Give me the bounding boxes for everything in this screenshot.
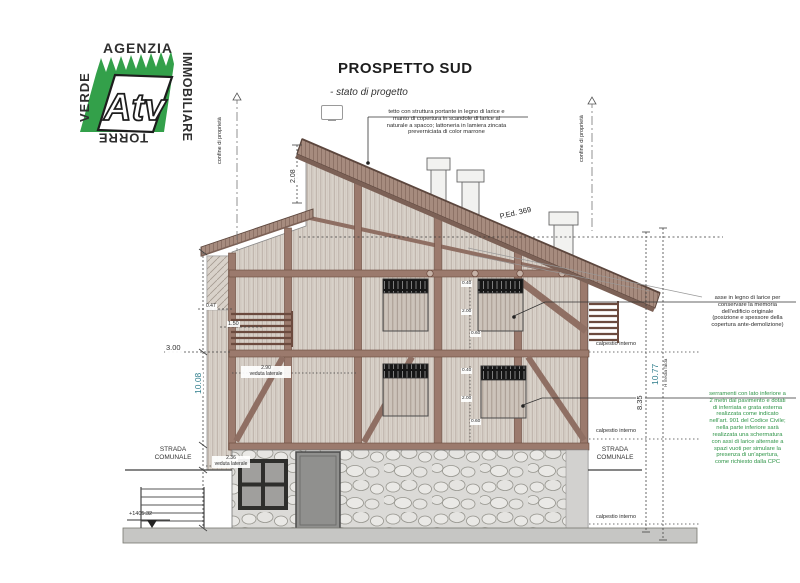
dim-chain-low-3: 0.60 bbox=[470, 419, 481, 425]
basement-door bbox=[296, 452, 340, 529]
dim-left-total: 10.08 bbox=[193, 372, 203, 395]
logo-monogram: Atv bbox=[103, 87, 167, 129]
basement-window bbox=[240, 461, 286, 508]
dim-chain-up-1: 0.40 bbox=[461, 281, 472, 287]
floor-beam-upper bbox=[229, 270, 589, 277]
logo-word-top: AGENZIA bbox=[103, 40, 173, 57]
level-marker-triangle bbox=[147, 520, 157, 528]
basement-right-strip bbox=[566, 450, 588, 530]
logo-word-bottom: TORRE bbox=[97, 130, 149, 145]
logo-word-right: IMMOBILIARE bbox=[179, 52, 194, 160]
dim-right-total: 10.77 bbox=[650, 363, 660, 386]
chimney-cap bbox=[549, 212, 578, 225]
larch-axis-note: asse in legno di larice per conservare l… bbox=[697, 295, 798, 329]
post bbox=[355, 181, 362, 450]
page-subtitle: - stato di progetto bbox=[330, 87, 408, 99]
dim-chain-low-2: 2.00 bbox=[461, 396, 472, 402]
property-marker-left bbox=[233, 93, 241, 100]
balcony-right bbox=[589, 301, 618, 343]
dim-left-s1: 0.47 bbox=[205, 304, 217, 310]
window-upper-left bbox=[383, 279, 428, 331]
dim-chain-up-3: 0.60 bbox=[470, 331, 481, 337]
elevation-drawing-sheet: Atv AGENZIA IMMOBILIARE TORRE VERDE PROS… bbox=[0, 0, 800, 583]
side-view-label-basement: 2.36 veduta laterale bbox=[212, 456, 250, 468]
page-title: PROSPETTO SUD bbox=[338, 60, 473, 78]
windows-note: serramenti con lato inferiore a 2 metri … bbox=[697, 391, 798, 466]
side-view-label-upper: 2.90 veduta laterale bbox=[241, 366, 291, 378]
floor-level-label-3: calpestio interno bbox=[596, 514, 636, 520]
elevation-quota-label: +1405.32 bbox=[129, 511, 152, 517]
dim-right-partial: 8.35 bbox=[636, 394, 645, 411]
post bbox=[435, 215, 442, 450]
window-lower-left bbox=[383, 364, 428, 416]
chimney-cap bbox=[457, 170, 484, 182]
logo-word-left: VERDE bbox=[77, 58, 92, 122]
monitor-icon bbox=[321, 105, 343, 120]
log-end bbox=[517, 270, 523, 276]
basement bbox=[232, 450, 588, 530]
log-end bbox=[427, 270, 433, 276]
property-label-left: confine di proprietà bbox=[217, 117, 223, 164]
dim-left-offset: 3.00 bbox=[165, 344, 182, 353]
floor-beam-mid bbox=[229, 350, 589, 357]
chimney-cap bbox=[427, 158, 450, 170]
log-end bbox=[472, 270, 478, 276]
floor-level-label-1: calpestio interno bbox=[596, 341, 636, 347]
window-upper-right bbox=[478, 279, 523, 331]
dim-left-s2: 1.50 bbox=[227, 321, 240, 327]
roof-note: tetto con struttura portante in legno di… bbox=[363, 109, 530, 136]
dim-roof-peak: 2.08 bbox=[290, 168, 298, 184]
ground bbox=[123, 528, 697, 543]
dim-chain-low-1: 0.40 bbox=[461, 368, 472, 374]
window-lower-right bbox=[481, 366, 526, 418]
property-label-right: confine di proprietà bbox=[579, 115, 585, 162]
floor-level-label-2: calpestio interno bbox=[596, 428, 636, 434]
road-label-left: STRADA COMUNALE bbox=[146, 446, 200, 461]
dim-chain-up-2: 2.00 bbox=[461, 309, 472, 315]
property-marker-right bbox=[588, 97, 596, 104]
floor-beam-lower bbox=[229, 443, 589, 450]
post bbox=[581, 277, 588, 450]
dim-right-total-note: H media falda bbox=[663, 359, 668, 387]
road-label-right: STRADA COMUNALE bbox=[590, 446, 640, 461]
